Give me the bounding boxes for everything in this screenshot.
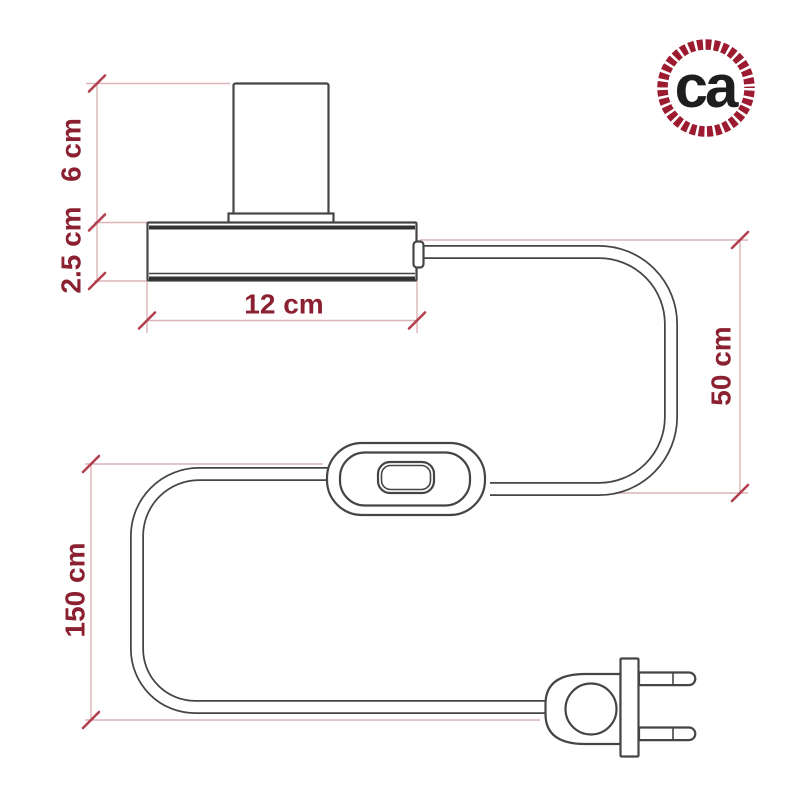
lamp-socket-assembly bbox=[148, 84, 424, 281]
plug-face-plate bbox=[621, 659, 639, 757]
cable-strain-relief-nub bbox=[414, 242, 424, 268]
inline-switch bbox=[327, 443, 485, 515]
lamp-dimension-diagram-page: 6 cm 2.5 cm 12 cm 50 cm 150 cm bbox=[0, 0, 800, 800]
dim-label-cable-upper-length: 50 cm bbox=[706, 326, 737, 405]
dim-label-base-height: 2.5 cm bbox=[56, 206, 87, 293]
dim-label-base-width: 12 cm bbox=[244, 289, 323, 320]
lamp-dimension-diagram: 6 cm 2.5 cm 12 cm 50 cm 150 cm bbox=[0, 0, 800, 800]
dim-label-socket-height: 6 cm bbox=[56, 118, 87, 182]
plug-prong-bottom bbox=[639, 728, 695, 741]
lamp-socket-tube bbox=[234, 84, 329, 216]
plug-prong-top bbox=[639, 673, 695, 686]
plug-grip-circle bbox=[566, 684, 617, 735]
logo-wordmark: ca bbox=[675, 53, 739, 120]
lamp-base bbox=[148, 223, 417, 281]
dimension-annotations: 6 cm 2.5 cm 12 cm 50 cm 150 cm bbox=[56, 76, 749, 729]
dim-label-cable-lower-length: 150 cm bbox=[60, 543, 91, 638]
power-plug bbox=[546, 659, 696, 757]
brand-logo: ca bbox=[663, 45, 750, 132]
